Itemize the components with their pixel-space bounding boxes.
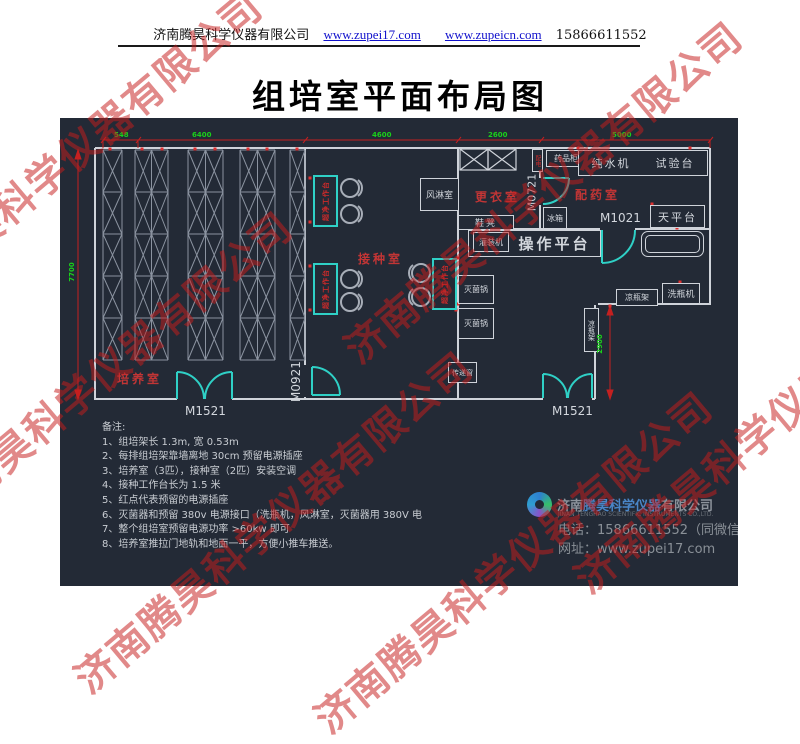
bottle-rack-label-v: 凉瓶架 (587, 320, 597, 341)
dim-5000: 5000 (612, 131, 631, 139)
clean-bench-3: 超净工作台 (432, 258, 457, 310)
dimension-lines (75, 137, 713, 399)
power-socket-dot (609, 305, 612, 308)
floor-plan-canvas: 风淋室 配电 药品柜 纯水机 试验台 天平台 冰箱 鞋凳 操作平台 灌装机 灭菌… (60, 118, 738, 586)
filling-machine-box: 灌装机 (473, 232, 509, 252)
header-company: 济南腾昊科学仪器有限公司 (153, 28, 309, 43)
clean-bench-2: 超净工作台 (313, 263, 338, 315)
note-item: 5、红点代表预留的电源插座 (102, 494, 422, 509)
door-label-m1521-left: M1521 (185, 404, 226, 418)
sink-basin (645, 235, 700, 253)
test-bench-label: 试验台 (656, 155, 695, 171)
bottle-rack-box-h: 凉瓶架 (616, 289, 658, 306)
page: { "header": { "company": "济南腾昊科学仪器有限公司",… (0, 0, 800, 600)
dim-2600: 2600 (488, 131, 507, 139)
clean-bench-label-3: 超净工作台 (440, 264, 450, 304)
pass-window-box: 传递窗 (448, 362, 477, 383)
note-item: 2、每排组培架靠墙离地 30cm 预留电源插座 (102, 450, 422, 465)
shoe-bench-label: 鞋凳 (475, 216, 497, 229)
power-socket-dot (296, 148, 299, 151)
culture-rack (188, 150, 223, 360)
header-link-zupei17[interactable]: www.zupei17.com (323, 27, 420, 42)
door-m0721 (543, 178, 569, 204)
power-socket-dot (214, 148, 217, 151)
dim-2900: 2900 (596, 332, 604, 356)
header-divider (118, 45, 640, 47)
sterilizer-box-2: 灭菌锅 (458, 308, 494, 339)
power-socket-dot (309, 221, 312, 224)
clean-bench-1: 超净工作台 (313, 175, 338, 227)
note-item: 7、整个组培室预留电源功率 >60kw 即可 (102, 523, 422, 538)
culture-rack (240, 150, 275, 360)
note-item: 3、培养室（3匹），接种室（2匹）安装空调 (102, 465, 422, 480)
footer-phone: 电话：15866611552（同微信） (558, 519, 738, 538)
sterilizer-label-2: 灭菌锅 (464, 318, 488, 329)
dim-4600: 4600 (372, 131, 391, 139)
bottle-washer-label: 洗瓶机 (667, 287, 694, 300)
room-label-inoculation: 接种室 (358, 250, 403, 267)
sink-box (641, 231, 704, 257)
balance-label: 天平台 (658, 209, 697, 225)
door-label-m1521-right: M1521 (552, 404, 593, 418)
power-socket-dot (109, 148, 112, 151)
stool (341, 270, 359, 288)
room-label-changing: 更衣室 (475, 188, 520, 205)
door-m1521-left-leaf1 (177, 372, 204, 399)
stool (341, 293, 359, 311)
culture-rack (103, 150, 122, 360)
dim-6400: 6400 (192, 131, 211, 139)
locker-row (460, 149, 516, 170)
power-socket-dot (247, 148, 250, 151)
door-m1521-left-leaf2 (205, 372, 232, 399)
medicine-cabinet-label: 药品柜 (554, 153, 578, 164)
air-shower-label: 风淋室 (426, 188, 453, 201)
culture-racks (103, 150, 305, 360)
water-test-bench-box: 纯水机 试验台 (578, 150, 708, 176)
page-title: 组培室平面布局图 (0, 70, 800, 118)
power-socket-dot (266, 148, 269, 151)
note-item: 8、培养室推拉门地轨和地面一平，方便小推车推送。 (102, 538, 422, 553)
door-m1521-right-leaf2 (568, 374, 592, 398)
dim-7700: 7700 (68, 260, 76, 284)
filling-machine-label: 灌装机 (479, 237, 503, 248)
power-socket-dot (309, 265, 312, 268)
footer-company-english: JINAN TENGHAO SCIENTIFIC INSTRUMENTS CO.… (558, 511, 713, 518)
door-label-m1021: M1021 (600, 211, 641, 225)
door-label-m0721: M0721 (526, 173, 539, 213)
company-logo (527, 492, 552, 517)
room-label-culture: 培养室 (117, 370, 162, 387)
stool (341, 179, 359, 197)
culture-rack (290, 150, 305, 360)
pass-window-label: 传递窗 (452, 368, 473, 378)
bottle-washer-box: 洗瓶机 (662, 283, 700, 304)
room-label-dispensing: 配药室 (575, 186, 620, 203)
power-box: 配电 (532, 149, 543, 172)
air-shower-box: 风淋室 (420, 178, 459, 211)
door-m1021 (602, 230, 635, 263)
stool (412, 288, 430, 306)
operation-platform-label: 操作平台 (518, 233, 590, 254)
footer-website[interactable]: 网址：www.zupei17.com (558, 538, 715, 557)
clean-bench-label-1: 超净工作台 (321, 181, 331, 221)
clean-bench-label-2: 超净工作台 (321, 269, 331, 309)
culture-rack (135, 150, 168, 360)
page-header: 济南腾昊科学仪器有限公司 www.zupei17.com www.zupeicn… (0, 24, 800, 43)
dim-548: 548 (114, 131, 129, 139)
header-phone: 15866611552 (556, 28, 647, 43)
power-socket-dot (309, 309, 312, 312)
note-item: 1、组培架长 1.3m, 宽 0.53m (102, 436, 422, 451)
door-m0921 (312, 367, 340, 395)
door-m1521-right-leaf1 (543, 374, 567, 398)
notes-block: 备注: 1、组培架长 1.3m, 宽 0.53m 2、每排组培架靠墙离地 30c… (102, 421, 422, 552)
balance-table-box: 天平台 (650, 205, 705, 228)
power-socket-dot (309, 177, 312, 180)
fridge-box: 冰箱 (543, 207, 567, 229)
note-item: 6、灭菌器和预留 380v 电源接口（洗瓶机，风淋室，灭菌器用 380V 电 (102, 509, 422, 524)
power-socket-dot (161, 148, 164, 151)
fridge-label: 冰箱 (547, 213, 563, 224)
sterilizer-label-1: 灭菌锅 (464, 284, 488, 295)
door-label-m0921: M0921 (289, 362, 303, 402)
shoe-bench-box: 鞋凳 (458, 215, 514, 230)
stools (341, 179, 430, 311)
power-box-label: 配电 (533, 155, 542, 167)
power-socket-dot (194, 148, 197, 151)
header-link-zupeicn[interactable]: www.zupeicn.com (445, 27, 542, 42)
note-item: 4、接种工作台长为 1.5 米 (102, 479, 422, 494)
sterilizer-box-1: 灭菌锅 (458, 275, 494, 304)
stool (412, 264, 430, 282)
power-socket-dot (141, 148, 144, 151)
stool (341, 205, 359, 223)
notes-title: 备注: (102, 421, 422, 436)
bottle-rack-label-h: 凉瓶架 (625, 292, 649, 303)
water-machine-label: 纯水机 (592, 155, 631, 171)
